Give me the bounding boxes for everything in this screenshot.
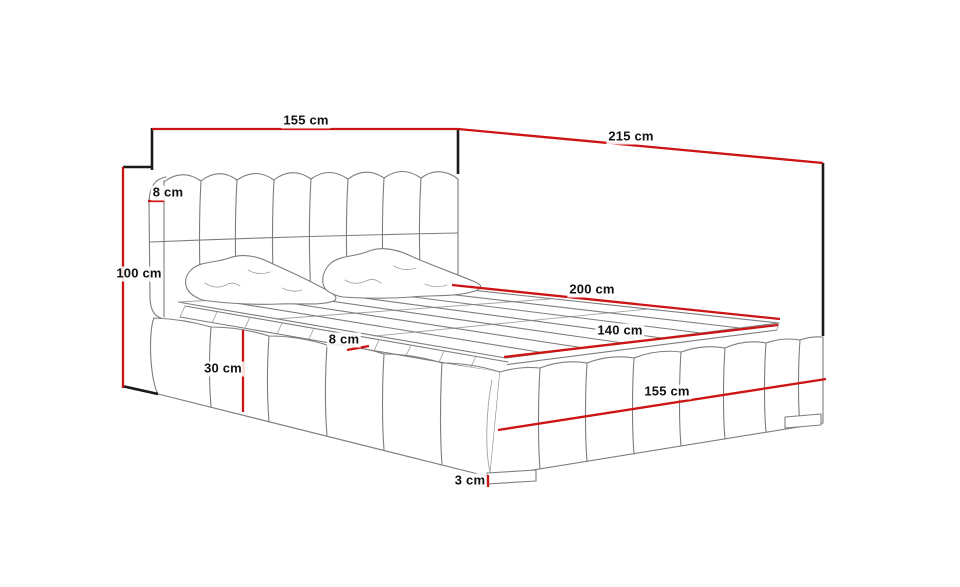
bed-line-drawing — [0, 0, 960, 587]
dim-label-leg-height: 3 cm — [453, 474, 487, 489]
dim-label-headboard-width: 155 cm — [281, 114, 330, 129]
dim-label-frame-height: 30 cm — [202, 362, 244, 377]
tick-headboard-height-bottom — [122, 386, 158, 394]
bed-dimension-diagram: 155 cm 215 cm 8 cm 100 cm 200 cm 140 cm … — [0, 0, 960, 587]
leg-front-right — [785, 414, 821, 428]
dim-label-side-rail-thickness: 8 cm — [327, 333, 361, 348]
dim-label-headboard-thickness: 8 cm — [151, 186, 185, 201]
dim-label-bed-width: 155 cm — [642, 385, 691, 400]
dim-label-overall-depth: 215 cm — [606, 130, 655, 145]
dim-label-sleeping-area-length: 200 cm — [567, 283, 616, 298]
bed-frame-foot — [487, 337, 823, 477]
dim-label-sleeping-area-width: 140 cm — [595, 324, 644, 339]
dim-label-headboard-height: 100 cm — [114, 267, 163, 282]
leg-front-left — [487, 470, 536, 484]
